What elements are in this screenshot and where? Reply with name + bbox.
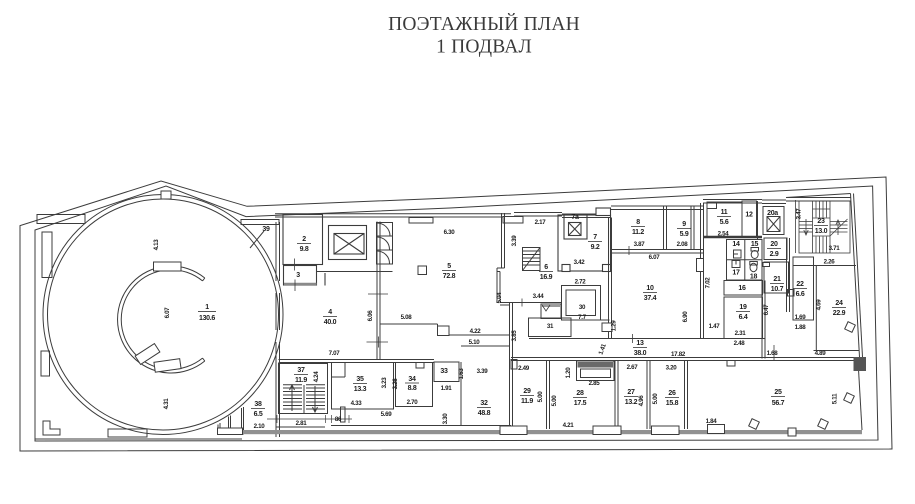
svg-text:5.10: 5.10 [469,339,481,346]
svg-text:2.48: 2.48 [734,340,746,347]
svg-text:5.08: 5.08 [401,314,413,321]
svg-text:1.47: 1.47 [709,323,721,330]
svg-text:6.30: 6.30 [444,229,456,236]
svg-text:7.7: 7.7 [578,314,587,321]
svg-text:34: 34 [408,376,416,383]
svg-text:1.29: 1.29 [611,320,618,332]
svg-text:7: 7 [593,234,597,241]
svg-text:16.9: 16.9 [540,274,553,281]
svg-text:5.00: 5.00 [537,391,544,403]
svg-text:3.20: 3.20 [666,365,678,372]
svg-text:5.9: 5.9 [680,231,689,238]
svg-text:3.44: 3.44 [533,293,545,300]
svg-text:13.3: 13.3 [354,386,367,393]
svg-text:37.4: 37.4 [644,295,657,302]
svg-text:130.6: 130.6 [199,315,215,322]
svg-text:6.47: 6.47 [763,304,770,316]
svg-text:56.7: 56.7 [772,400,785,407]
svg-text:72.8: 72.8 [443,273,456,280]
svg-text:4.13: 4.13 [153,239,160,251]
svg-text:13.2: 13.2 [625,399,638,406]
svg-text:29: 29 [523,388,531,395]
svg-text:6.06: 6.06 [367,310,374,322]
svg-text:22: 22 [796,281,804,288]
svg-text:6.07: 6.07 [649,254,661,261]
svg-text:14: 14 [732,241,740,248]
svg-text:18: 18 [750,274,758,281]
svg-text:2.70: 2.70 [407,399,419,406]
svg-text:4.24: 4.24 [313,371,320,383]
svg-text:16: 16 [738,285,746,292]
svg-text:11.2: 11.2 [632,229,644,236]
svg-text:37: 37 [297,367,305,374]
svg-text:2.81: 2.81 [296,420,308,427]
svg-text:4.96: 4.96 [638,395,645,407]
svg-text:15: 15 [751,241,759,248]
svg-text:2.49: 2.49 [518,365,530,372]
svg-text:20a: 20a [767,210,778,217]
svg-text:1 ПОДВАЛ: 1 ПОДВАЛ [436,37,532,58]
svg-text:2.72: 2.72 [575,279,587,286]
svg-text:1.91: 1.91 [441,385,453,392]
svg-text:2.26: 2.26 [824,259,836,266]
svg-text:5.6: 5.6 [720,219,729,226]
svg-text:4.89: 4.89 [815,350,827,357]
svg-text:1.63: 1.63 [458,368,465,380]
svg-text:22.9: 22.9 [833,310,846,317]
svg-text:33: 33 [440,368,448,375]
svg-text:4.33: 4.33 [351,400,363,407]
svg-text:28: 28 [576,390,584,397]
svg-text:3.39: 3.39 [477,368,489,375]
svg-text:6.5: 6.5 [254,411,263,418]
svg-text:25: 25 [774,389,782,396]
svg-text:17: 17 [732,270,740,277]
svg-text:6.07: 6.07 [164,307,171,319]
svg-text:2.31: 2.31 [735,330,747,337]
svg-text:5.11: 5.11 [832,393,839,404]
svg-text:1.69: 1.69 [795,314,807,321]
svg-text:20: 20 [770,241,778,248]
svg-text:31: 31 [547,323,554,330]
svg-text:39: 39 [262,226,270,233]
svg-text:1: 1 [205,304,209,311]
svg-text:4: 4 [328,309,332,316]
svg-text:4.69: 4.69 [816,299,823,311]
svg-text:9: 9 [682,221,686,228]
svg-text:3.30: 3.30 [442,413,449,425]
svg-text:11.9: 11.9 [295,377,307,384]
svg-text:5.00: 5.00 [652,393,659,405]
svg-text:3: 3 [296,272,300,279]
svg-text:2.54: 2.54 [718,231,730,238]
svg-text:3.26: 3.26 [392,378,399,390]
svg-text:2.08: 2.08 [677,241,689,248]
svg-text:32: 32 [480,400,488,407]
svg-text:6: 6 [544,264,548,271]
svg-text:24: 24 [835,300,843,307]
svg-text:4.31: 4.31 [163,398,170,410]
svg-text:4.22: 4.22 [470,328,482,335]
svg-text:4.21: 4.21 [563,422,575,429]
svg-text:38: 38 [254,401,262,408]
svg-text:11: 11 [721,209,728,216]
svg-text:13: 13 [636,340,644,347]
svg-text:6.90: 6.90 [682,311,689,323]
svg-text:2.85: 2.85 [589,380,601,387]
svg-text:2.17: 2.17 [535,219,547,226]
svg-text:8.8: 8.8 [408,385,417,392]
svg-text:3.42: 3.42 [574,259,586,266]
svg-text:27: 27 [627,389,635,396]
svg-text:2: 2 [302,236,306,243]
svg-text:3.23: 3.23 [381,377,388,389]
svg-text:30: 30 [579,304,586,311]
svg-text:23: 23 [817,218,825,225]
svg-text:3.39: 3.39 [511,235,518,247]
svg-text:ПОЭТАЖНЫЙ ПЛАН: ПОЭТАЖНЫЙ ПЛАН [388,14,580,35]
svg-text:5: 5 [447,263,451,270]
svg-text:5.69: 5.69 [381,411,393,418]
svg-text:2.10: 2.10 [254,423,266,430]
svg-text:17.5: 17.5 [574,400,587,407]
svg-text:15.8: 15.8 [666,400,679,407]
svg-text:6.6: 6.6 [796,291,805,298]
svg-text:9.8: 9.8 [300,246,309,253]
svg-text:10.7: 10.7 [771,286,784,293]
svg-text:17.82: 17.82 [671,351,686,358]
svg-text:35: 35 [356,376,364,383]
svg-text:11.9: 11.9 [521,398,533,405]
svg-text:38.0: 38.0 [634,350,647,357]
svg-text:6.4: 6.4 [739,314,748,321]
svg-text:3.71: 3.71 [829,245,841,252]
svg-text:48.8: 48.8 [478,410,491,417]
svg-text:8: 8 [636,219,640,226]
svg-text:86: 86 [335,416,342,423]
svg-text:1.68: 1.68 [767,350,779,357]
svg-text:7.07: 7.07 [329,350,341,357]
svg-text:10: 10 [646,285,654,292]
svg-text:2.9: 2.9 [770,251,779,258]
svg-text:2.67: 2.67 [627,364,639,371]
svg-text:1.84: 1.84 [706,418,718,425]
svg-text:7a: 7a [571,214,579,221]
svg-text:3.87: 3.87 [634,241,646,248]
svg-text:9.2: 9.2 [591,244,600,251]
svg-text:3.47: 3.47 [796,208,803,220]
svg-text:40.0: 40.0 [324,319,337,326]
svg-text:7.02: 7.02 [705,277,712,289]
svg-text:5.04: 5.04 [496,292,503,304]
svg-text:21: 21 [773,276,781,283]
svg-text:1.88: 1.88 [795,324,807,331]
svg-text:12: 12 [745,212,753,219]
svg-text:19: 19 [739,304,747,311]
svg-text:13.0: 13.0 [815,228,828,235]
svg-text:26: 26 [668,390,676,397]
svg-text:3.85: 3.85 [511,330,518,342]
svg-text:1.20: 1.20 [565,367,572,379]
svg-text:5.00: 5.00 [551,395,558,407]
